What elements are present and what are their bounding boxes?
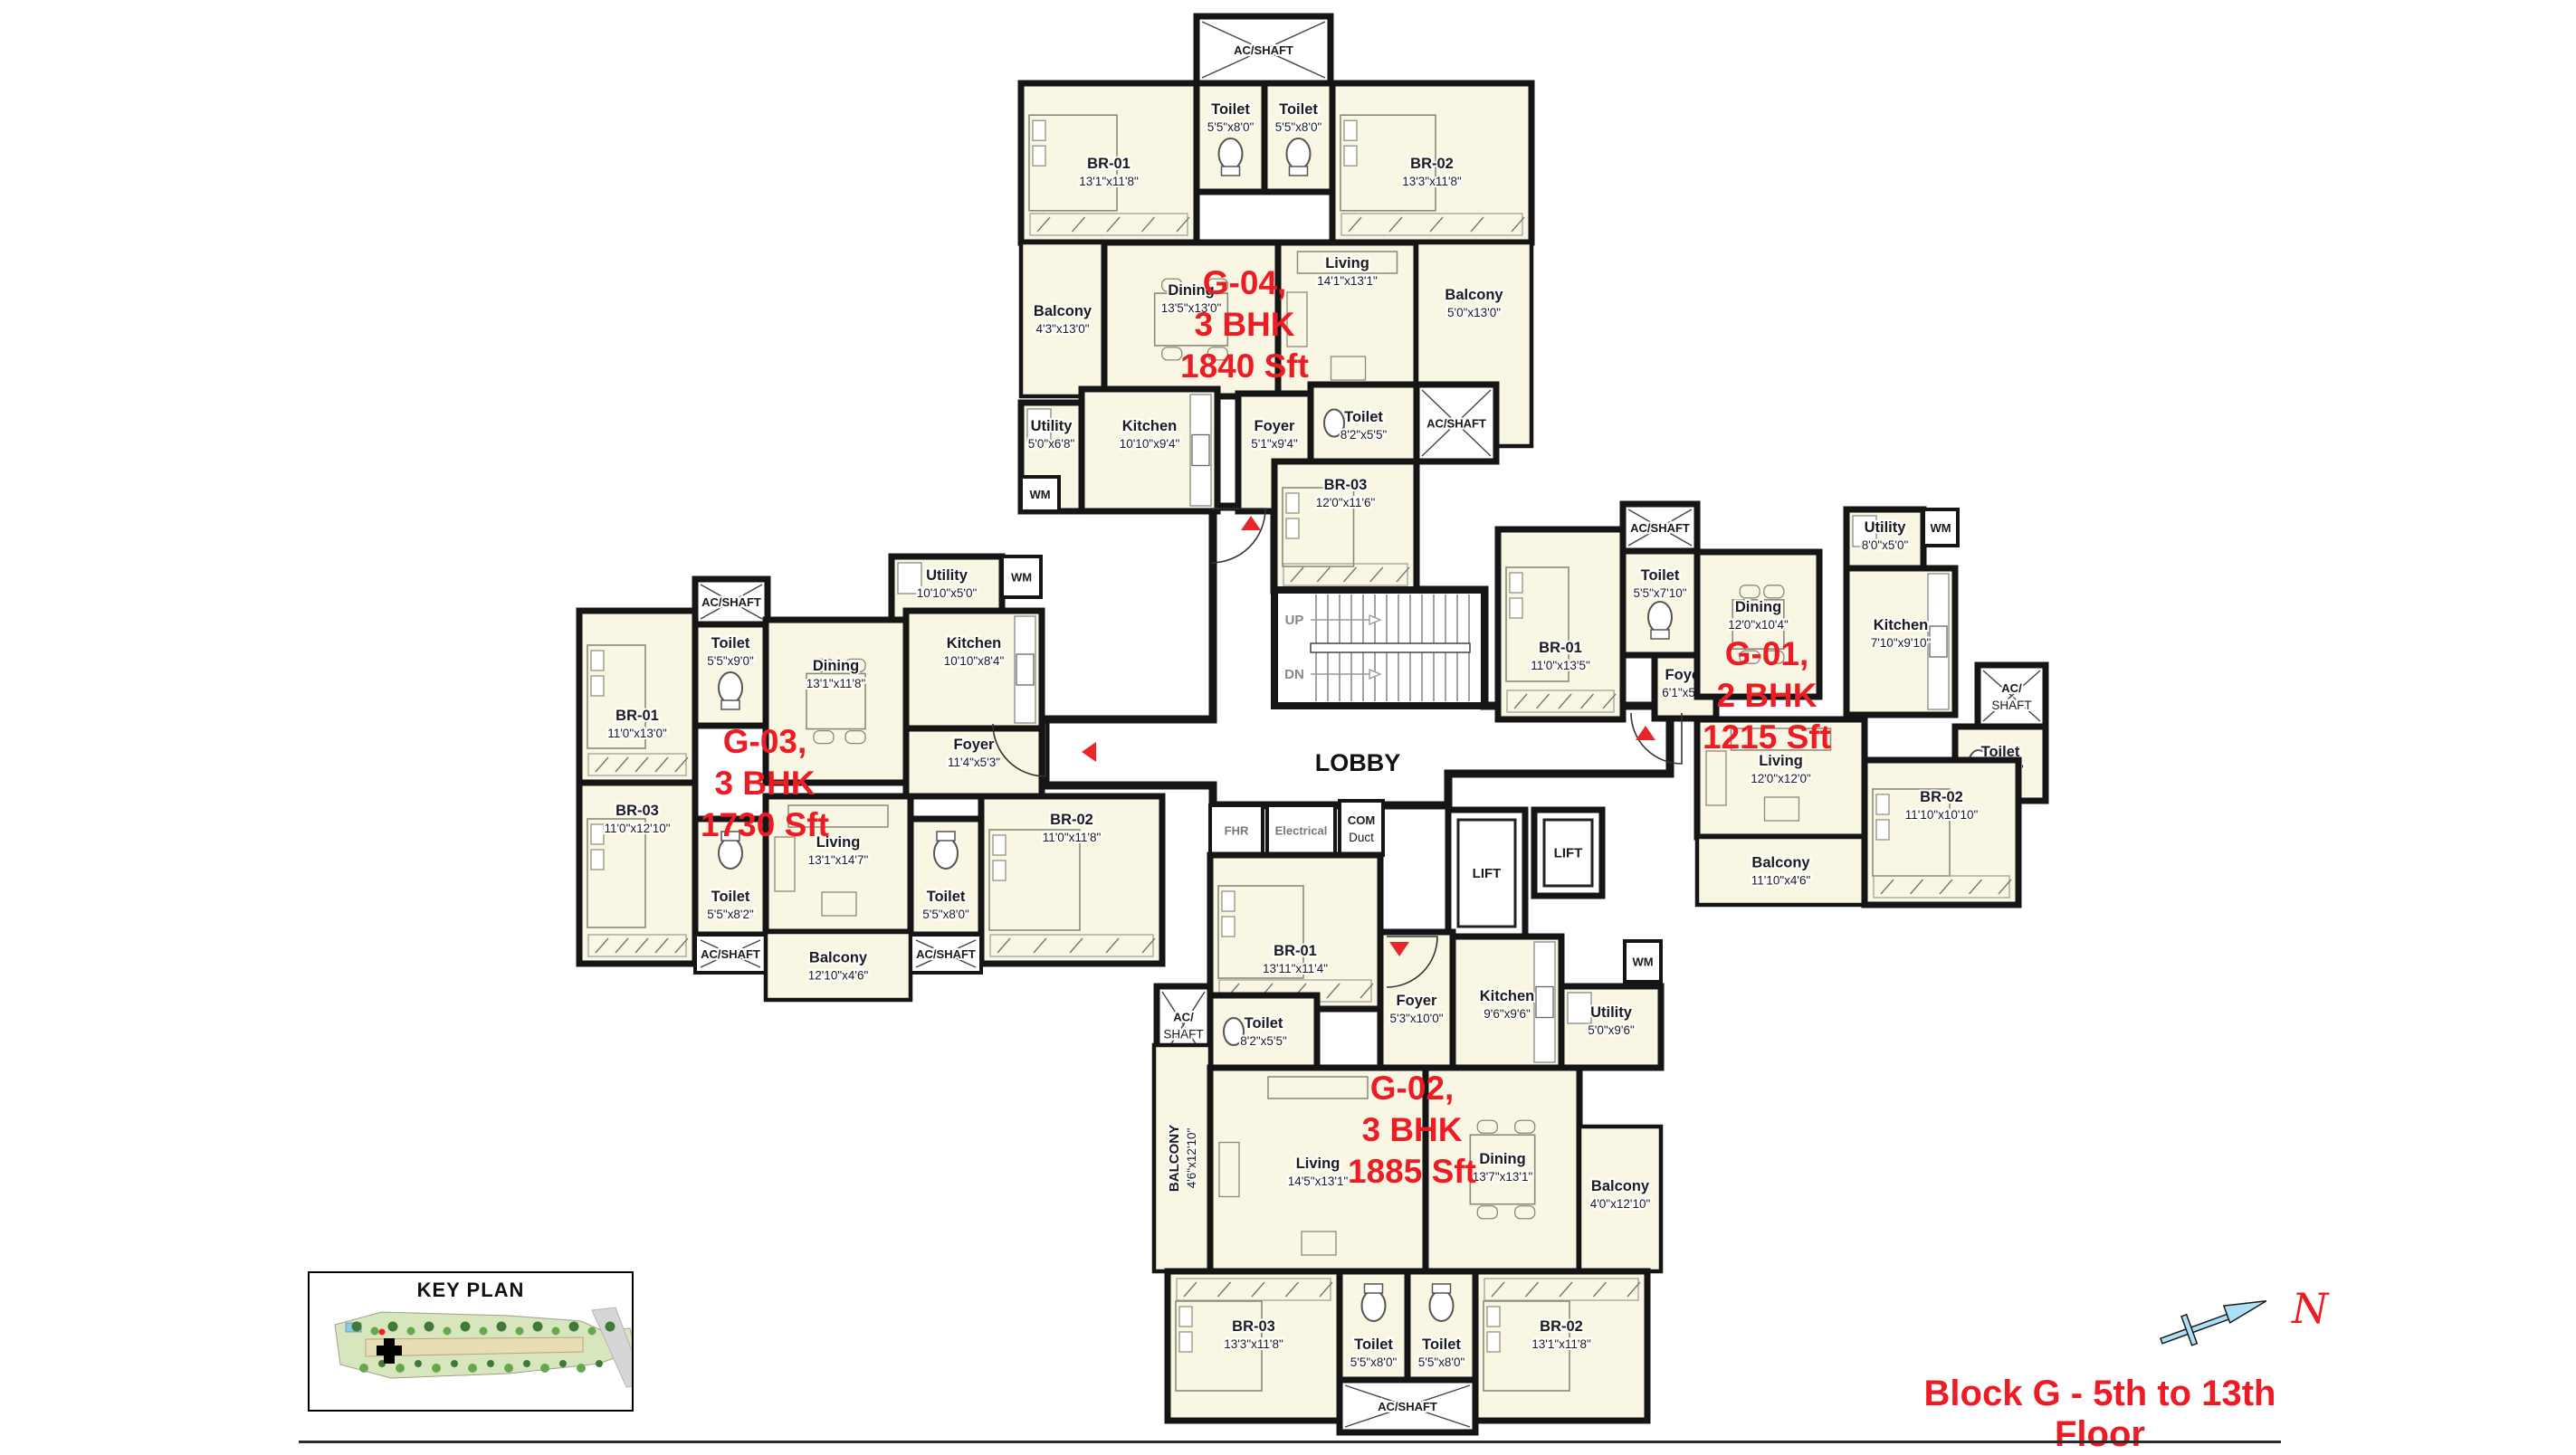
room-dims: 4'6"x12'10" <box>1185 1128 1198 1189</box>
counter-icon <box>1190 395 1211 506</box>
counter-icon <box>1534 942 1555 1062</box>
room-name: BR-03 <box>1232 1318 1275 1335</box>
room-dims: 11'10"x4'6" <box>1751 874 1811 888</box>
room-dims: 5'0"x6'8" <box>1028 437 1075 451</box>
key-plan-title: KEY PLAN <box>310 1279 632 1302</box>
room-dims: SHAFT <box>1163 1028 1203 1041</box>
cistern-icon <box>721 700 739 709</box>
room-name: WM <box>1930 521 1951 535</box>
room-dims: 5'0"x9'6" <box>1588 1023 1635 1037</box>
pillow-icon <box>1286 518 1299 538</box>
room-dims: 14'5"x13'1" <box>1288 1174 1349 1188</box>
room-name: BR-02 <box>1410 156 1454 172</box>
counter-icon <box>1928 574 1949 709</box>
room-dims: 11'10"x10'10" <box>1905 808 1979 822</box>
room-name: Toilet <box>1422 1336 1461 1353</box>
room-name: BR-01 <box>1087 156 1131 172</box>
room-name: WM <box>1632 956 1653 969</box>
room-dims: 8'2"x5'5" <box>1340 428 1388 442</box>
room-name: Balcony <box>1034 303 1092 319</box>
room-name: WM <box>1011 571 1032 585</box>
pillow-icon <box>993 861 1006 880</box>
pillow-icon <box>1344 120 1357 140</box>
room-dims: 13'7"x13'1" <box>1473 1170 1533 1184</box>
key-plan-map <box>310 1304 632 1409</box>
room-name: LIFT <box>1554 846 1583 861</box>
room-g02-balcony <box>1154 1045 1210 1271</box>
room-name: Kitchen <box>1874 617 1929 633</box>
pillow-icon <box>1033 120 1045 140</box>
tree-icon <box>396 1364 405 1373</box>
room-dims: SHAFT <box>1991 699 2031 712</box>
pillow-icon <box>1876 820 1889 840</box>
tree-icon <box>606 1322 615 1332</box>
room-name: BR-02 <box>1540 1318 1583 1335</box>
room-name: Toilet <box>1211 101 1250 118</box>
unit-label-g02: 3 BHK <box>1361 1111 1462 1148</box>
room-name: AC/SHAFT <box>701 595 761 609</box>
room-dims: 8'2"x5'5" <box>1240 1034 1287 1048</box>
room-name: WM <box>1029 488 1050 501</box>
room-dims: 4'3"x13'0" <box>1035 322 1089 336</box>
room-name: Kitchen <box>1480 988 1535 1004</box>
pillow-icon <box>591 850 604 870</box>
room-name: Balcony <box>1591 1178 1650 1194</box>
room-dims: 8'0"x5'0" <box>1862 538 1909 552</box>
stair-dn-label: DN <box>1284 667 1304 682</box>
sink-icon <box>1568 993 1591 1023</box>
room-name: Balcony <box>809 950 868 966</box>
pillow-icon <box>1179 1307 1192 1327</box>
wc-icon <box>1430 1290 1454 1321</box>
room-dims: Duct <box>1349 831 1374 844</box>
pillow-icon <box>591 651 604 670</box>
room-name: AC/SHAFT <box>916 947 976 961</box>
tree-icon <box>432 1364 441 1373</box>
tree-icon <box>359 1364 368 1373</box>
tree-icon <box>569 1322 579 1332</box>
room-name: Foyer <box>1255 418 1296 434</box>
tree-icon <box>588 1327 596 1336</box>
pillow-icon <box>1487 1332 1500 1352</box>
room-name: AC/SHAFT <box>701 947 760 961</box>
block-g-dot <box>379 1329 386 1336</box>
room-name: LIFT <box>1473 866 1502 881</box>
pillow-icon <box>591 676 604 696</box>
unit-label-g01: 1215 Sft <box>1703 718 1831 756</box>
room-name: Toilet <box>711 889 750 905</box>
room-name: AC/SHAFT <box>1426 417 1486 431</box>
north-arrow-glyph <box>2156 1288 2272 1355</box>
cistern-icon <box>1222 166 1240 176</box>
room-name: BR-01 <box>1539 640 1582 656</box>
north-arrow-box: N <box>2145 1285 2353 1375</box>
room-g03-balcony <box>766 932 911 1000</box>
tree-icon <box>425 1322 434 1332</box>
wc-icon <box>1287 138 1311 169</box>
room-name: Balcony <box>1751 855 1810 871</box>
unit-label-g04: G-04, <box>1203 264 1287 301</box>
unit-label-g03: 3 BHK <box>714 765 815 802</box>
sofa-icon <box>775 837 795 891</box>
room-name: Utility <box>1590 1004 1633 1021</box>
room-name: FHR <box>1225 824 1249 838</box>
room-dims: 10'10"x9'4" <box>1120 437 1180 451</box>
pillow-icon <box>1876 794 1889 814</box>
room-name: BR-01 <box>1274 943 1317 959</box>
room-dims: 5'5"x8'0" <box>922 908 969 921</box>
room-name: BR-03 <box>615 803 659 819</box>
room-name: Toilet <box>1279 101 1318 118</box>
sofa-icon <box>1706 751 1726 805</box>
room-dims: 11'0"x13'0" <box>607 727 667 740</box>
floor-plan-page: { "key_plan": {"title": "KEY PLAN"}, "ca… <box>0 0 2576 1448</box>
room-name: Toilet <box>1344 409 1383 425</box>
cistern-icon <box>937 832 955 841</box>
floor-plan: AC/SHAFTToilet5'5"x8'0"Toilet5'5"x8'0"BR… <box>0 0 2576 1448</box>
stair-rail <box>1311 643 1470 652</box>
room-dims: 12'0"x12'0" <box>1751 772 1811 785</box>
room-name: Kitchen <box>1122 418 1178 434</box>
room-dims: 5'5"x9'0" <box>707 654 754 668</box>
room-name: BR-02 <box>1050 812 1093 828</box>
tree-icon <box>516 1327 524 1336</box>
room-name: Dining <box>813 658 859 674</box>
tree-icon <box>487 1360 494 1367</box>
tree-icon <box>504 1364 513 1373</box>
tree-icon <box>559 1360 567 1367</box>
key-plan: KEY PLAN <box>308 1271 634 1412</box>
unit-label-g04: 3 BHK <box>1194 306 1294 343</box>
room-name: Balcony <box>1445 287 1503 303</box>
tree-icon <box>533 1322 543 1332</box>
unit-label-g03: G-03, <box>723 723 807 760</box>
tree-icon <box>540 1364 549 1373</box>
room-dims: 11'0"x12'10" <box>604 822 670 835</box>
tree-icon <box>407 1327 415 1336</box>
room-dims: 12'10"x4'6" <box>808 969 869 983</box>
wc-icon <box>1648 602 1672 632</box>
room-name: Toilet <box>1354 1336 1393 1353</box>
room-g02-com <box>1340 801 1383 855</box>
tree-icon <box>371 1327 379 1336</box>
tree-icon <box>444 1327 452 1336</box>
sofa-icon <box>1268 1077 1368 1098</box>
cistern-icon <box>1290 166 1308 176</box>
room-g01-balcony <box>1697 837 1865 905</box>
pillow-icon <box>591 824 604 844</box>
room-dims: 10'10"x5'0" <box>917 586 978 600</box>
room-name: Utility <box>926 567 968 584</box>
room-name: Utility <box>1031 418 1073 434</box>
room-name: BR-03 <box>1324 477 1368 493</box>
stair-up-label: UP <box>1285 613 1304 628</box>
room-dims: 9'6"x9'6" <box>1484 1007 1531 1021</box>
room-dims: 13'1"x11'8" <box>806 677 866 690</box>
wc-icon <box>1219 138 1243 169</box>
room-g04-balcony <box>1021 242 1104 396</box>
room-dims: 5'5"x8'0" <box>1350 1355 1398 1369</box>
room-dims: 14'1"x13'1" <box>1317 274 1378 288</box>
unit-label-g01: 2 BHK <box>1716 677 1817 714</box>
room-name: COM <box>1348 813 1375 827</box>
room-name: Living <box>1296 1155 1340 1172</box>
room-dims: 13'11"x11'4" <box>1263 962 1328 975</box>
room-name: BR-01 <box>615 708 659 724</box>
pillow-icon <box>993 835 1006 855</box>
cistern-icon <box>1651 630 1669 639</box>
room-dims: 11'0"x11'8" <box>1043 831 1102 844</box>
room-dims: 12'0"x11'6" <box>1316 496 1376 509</box>
room-dims: 7'10"x9'10" <box>1871 636 1932 650</box>
room-name: BR-02 <box>1920 789 1963 805</box>
room-name: Foyer <box>1397 993 1438 1009</box>
room-dims: 5'0"x13'0" <box>1447 306 1501 319</box>
unit-label-g01: G-01, <box>1725 635 1809 672</box>
room-name: Foyer <box>954 737 996 753</box>
wc-icon <box>934 838 958 869</box>
room-dims: 12'0"x10'4" <box>1728 618 1789 632</box>
tree-icon <box>415 1360 422 1367</box>
room-dims: 5'5"x8'0" <box>1418 1355 1465 1369</box>
tree-icon <box>596 1360 603 1367</box>
room-dims: 5'1"x9'4" <box>1251 437 1298 451</box>
pillow-icon <box>1510 573 1522 593</box>
room-name: AC/ <box>1173 1011 1194 1024</box>
room-dims: 5'5"x8'0" <box>1275 120 1322 134</box>
bottom-rule <box>299 1441 2281 1443</box>
tree-icon <box>388 1322 398 1332</box>
room-dims: 5'3"x10'0" <box>1389 1012 1443 1025</box>
room-name: Dining <box>1479 1151 1525 1167</box>
room-dims: 13'1"x11'8" <box>1079 175 1139 188</box>
room-name: Toilet <box>1245 1015 1283 1032</box>
wc-icon <box>1362 1290 1386 1321</box>
pillow-icon <box>1487 1307 1500 1327</box>
tree-icon <box>352 1322 362 1332</box>
cistern-icon <box>1365 1284 1383 1293</box>
room-dims: 13'3"x11'8" <box>1402 175 1462 188</box>
unit-label-g03: 1730 Sft <box>701 806 829 843</box>
wc-icon <box>719 672 742 703</box>
unit-label-g02: 1885 Sft <box>1348 1153 1476 1190</box>
room-dims: 5'5"x8'0" <box>1207 120 1255 134</box>
lobby-label: LOBBY <box>1315 749 1401 776</box>
tree-icon <box>468 1364 477 1373</box>
room-dims: 11'4"x5'3" <box>948 756 1000 769</box>
room-dims: 13'1"x11'8" <box>1531 1337 1591 1351</box>
room-name: BALCONY <box>1167 1125 1182 1192</box>
north-label: N <box>2291 1285 2330 1333</box>
tree-icon <box>461 1322 471 1332</box>
room-name: Dining <box>1735 599 1781 615</box>
tree-icon <box>480 1327 488 1336</box>
pillow-icon <box>1179 1332 1192 1352</box>
room-dims: 5'5"x7'10" <box>1633 586 1686 600</box>
sofa-icon <box>1219 1143 1239 1197</box>
north-arrow: N <box>2145 1285 2353 1375</box>
room-dims: 10'10"x8'4" <box>944 654 1005 668</box>
room-name: Utility <box>1865 519 1907 536</box>
tree-icon <box>577 1364 586 1373</box>
tree-icon <box>497 1322 507 1332</box>
room-dims: 13'1"x14'7" <box>808 853 869 867</box>
room-name: Toilet <box>711 635 750 651</box>
pillow-icon <box>1286 493 1299 513</box>
room-name: Toilet <box>1641 567 1680 584</box>
pillow-icon <box>1510 598 1522 618</box>
pillow-icon <box>1222 891 1235 911</box>
room-dims: 4'0"x12'10" <box>1590 1197 1651 1211</box>
tree-icon <box>552 1327 560 1336</box>
unit-label-g02: G-02, <box>1370 1070 1455 1107</box>
counter-icon <box>1015 616 1035 723</box>
room-dims: 13'3"x11'8" <box>1224 1337 1283 1351</box>
block-g-marker <box>384 1338 395 1364</box>
tree-icon <box>523 1360 530 1367</box>
pillow-icon <box>1222 917 1235 937</box>
pillow-icon <box>1344 146 1357 166</box>
room-name: Toilet <box>927 889 966 905</box>
pillow-icon <box>1033 146 1045 166</box>
room-dims: 5'5"x8'2" <box>707 908 754 921</box>
room-dims: 11'0"x13'5" <box>1531 659 1590 672</box>
room-name: Kitchen <box>947 635 1002 651</box>
unit-label-g04: 1840 Sft <box>1180 347 1309 385</box>
room-name: Living <box>1325 255 1369 271</box>
tree-icon <box>451 1360 458 1367</box>
room-name: AC/ <box>2001 681 2022 695</box>
room-name: AC/SHAFT <box>1234 43 1293 57</box>
room-name: Electrical <box>1275 824 1328 838</box>
room-name: AC/SHAFT <box>1630 521 1690 535</box>
room-name: AC/SHAFT <box>1378 1400 1437 1413</box>
cistern-icon <box>1433 1284 1451 1293</box>
